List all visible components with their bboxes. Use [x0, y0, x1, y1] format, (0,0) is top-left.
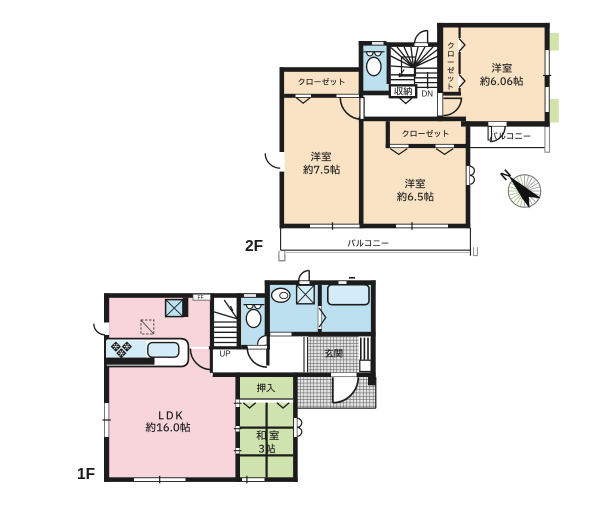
svg-text:2F: 2F: [245, 238, 263, 255]
svg-text:1F: 1F: [77, 466, 95, 483]
svg-text:DN: DN: [422, 90, 434, 99]
svg-text:FF: FF: [198, 295, 204, 301]
svg-text:UP: UP: [220, 350, 231, 359]
